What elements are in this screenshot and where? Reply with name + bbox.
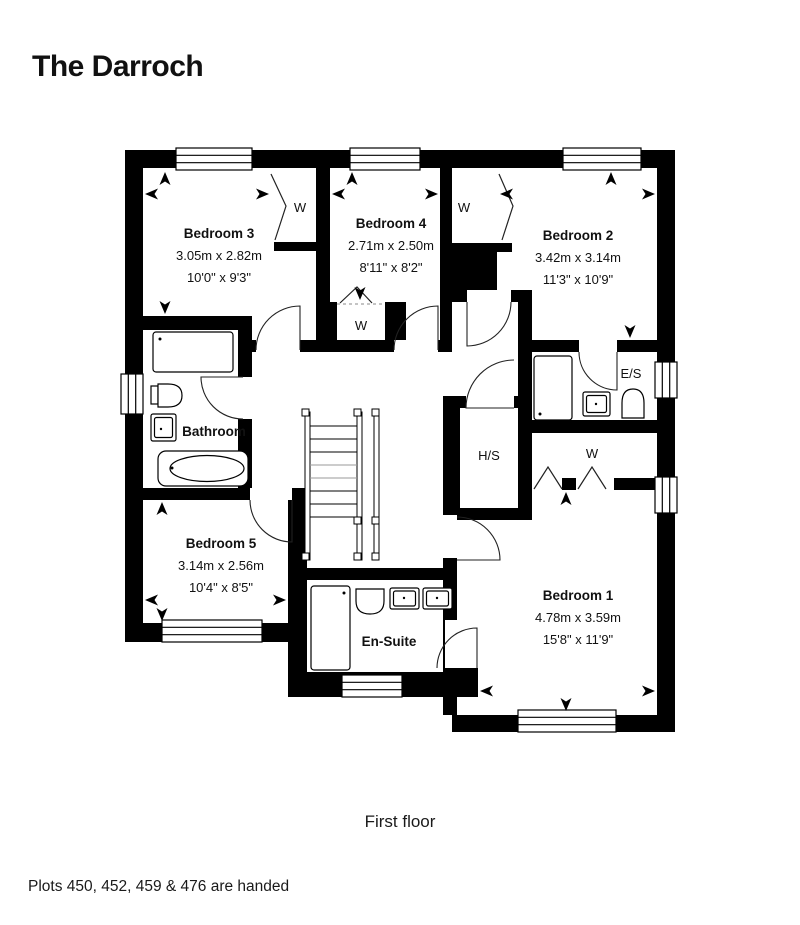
window-bedroom-1-side (655, 477, 677, 513)
ensuite-shower (311, 586, 350, 670)
bedroom-4-doorway (406, 302, 440, 340)
room-bedroom-4 (330, 168, 452, 302)
bathroom-sink (151, 414, 176, 441)
es-sink (583, 392, 610, 416)
bedroom-2-name: Bedroom 2 (543, 228, 614, 243)
bedroom-1-metric: 4.78m x 3.59m (535, 610, 621, 625)
wardrobe-label-4: W (586, 446, 599, 461)
window-bedroom-5 (162, 620, 262, 642)
bedroom-3-name: Bedroom 3 (184, 226, 255, 241)
bathroom-toilet (151, 384, 182, 407)
bedroom-4-name: Bedroom 4 (356, 216, 427, 231)
es-label: E/S (621, 366, 642, 381)
bedroom-2-imperial: 11'3" x 10'9" (543, 272, 614, 287)
floorplan-page: The Darroch (0, 0, 800, 925)
ensuite-sink-1 (390, 588, 419, 609)
bathroom-shower (153, 332, 233, 372)
ensuite-toilet (356, 589, 384, 614)
bedroom-1-name: Bedroom 1 (543, 588, 614, 603)
page-title: The Darroch (32, 50, 203, 83)
bedroom-4-metric: 2.71m x 2.50m (348, 238, 434, 253)
bedroom-3-imperial: 10'0" x 9'3" (187, 270, 251, 285)
bedroom-1-imperial: 15'8" x 11'9" (543, 632, 614, 647)
bathroom-name: Bathroom (182, 424, 246, 439)
bedroom-5-name: Bedroom 5 (186, 536, 257, 551)
es-toilet (622, 389, 644, 418)
hs-label: H/S (478, 448, 500, 463)
window-bedroom-3 (176, 148, 252, 170)
window-bedroom-4 (350, 148, 420, 170)
bedroom-5-imperial: 10'4" x 8'5" (189, 580, 253, 595)
bedroom-4-imperial: 8'11" x 8'2" (359, 260, 422, 275)
ensuite-sink-2 (423, 588, 452, 609)
bathtub (158, 451, 248, 486)
bedroom-5-metric: 3.14m x 2.56m (178, 558, 264, 573)
window-bathroom (121, 374, 143, 414)
floor-caption: First floor (365, 812, 436, 831)
window-bedroom-2 (563, 148, 641, 170)
wardrobe-label-2: W (458, 200, 471, 215)
handed-plots-note: Plots 450, 452, 459 & 476 are handed (28, 878, 289, 895)
wardrobe-label-3: W (355, 318, 368, 333)
window-ensuite (342, 675, 402, 697)
ensuite-name: En-Suite (362, 634, 417, 649)
bedroom-2-metric: 3.42m x 3.14m (535, 250, 621, 265)
wardrobe-label-1: W (294, 200, 307, 215)
floor-plan: The Darroch (0, 0, 800, 925)
es-shower (534, 356, 572, 420)
window-bedroom-1 (518, 710, 616, 732)
bedroom-3-metric: 3.05m x 2.82m (176, 248, 262, 263)
corridor (452, 302, 518, 352)
window-es (655, 362, 677, 398)
